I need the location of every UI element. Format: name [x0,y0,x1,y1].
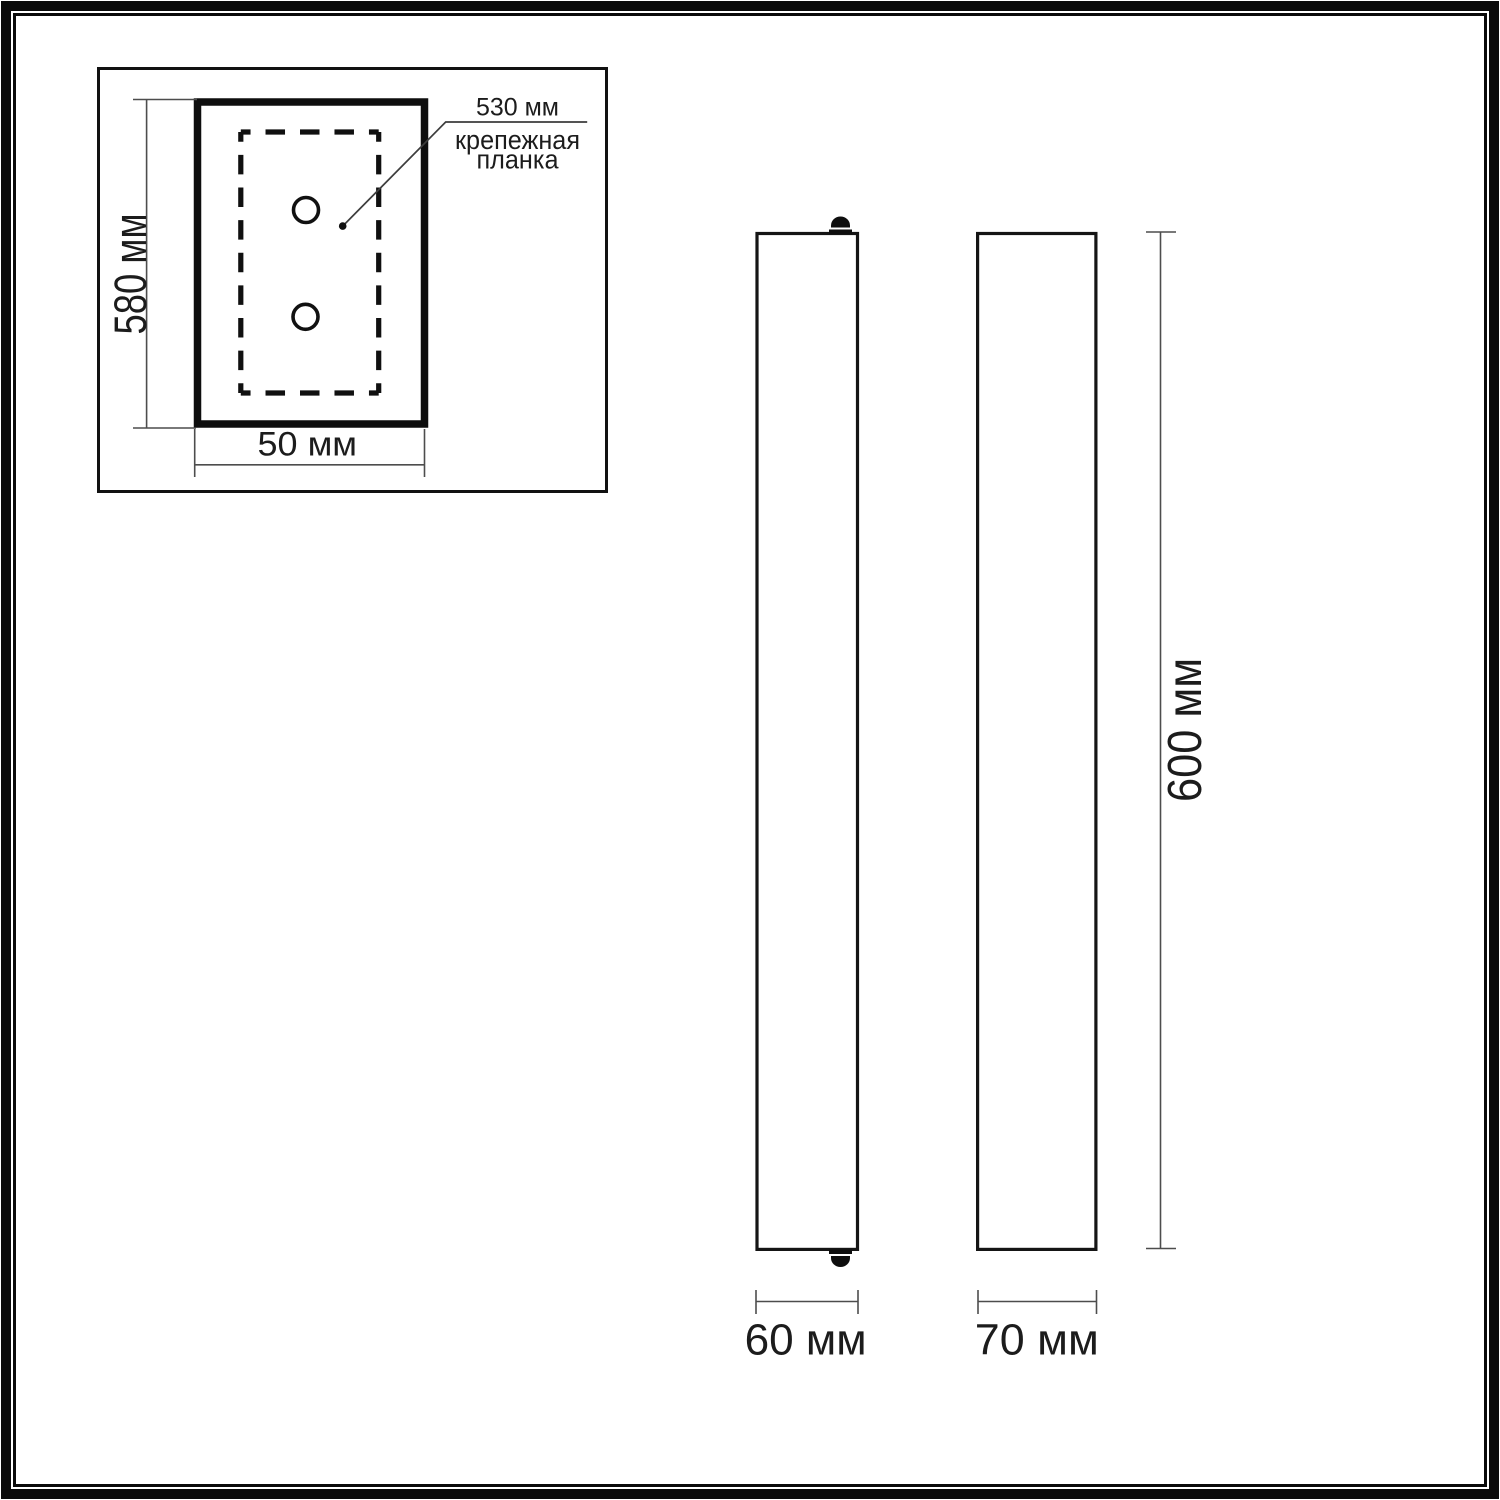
svg-text:60 мм: 60 мм [745,1316,867,1365]
svg-text:530 мм: 530 мм [476,94,559,122]
svg-text:50 мм: 50 мм [258,426,358,464]
svg-text:70 мм: 70 мм [975,1316,1099,1365]
svg-text:планка: планка [477,145,560,175]
svg-text:580 мм: 580 мм [105,214,156,335]
svg-text:600 мм: 600 мм [1159,658,1212,802]
